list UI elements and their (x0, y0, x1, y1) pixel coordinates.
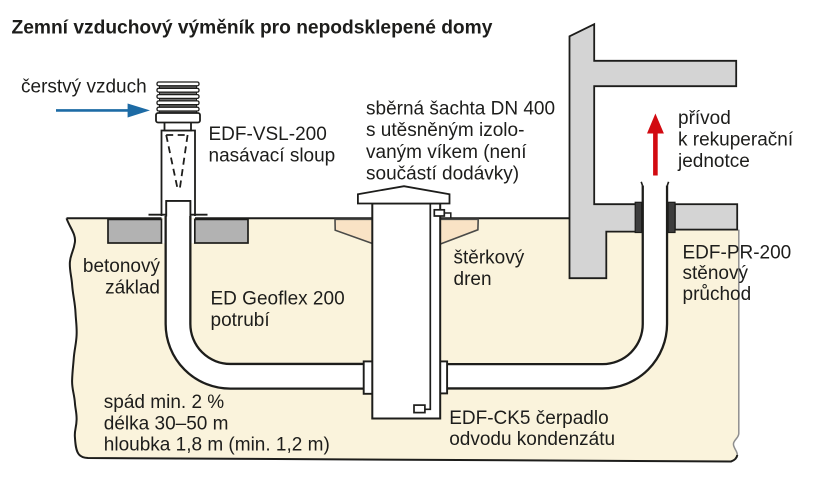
svg-text:nasávací sloup: nasávací sloup (209, 145, 336, 166)
svg-text:přívod: přívod (678, 108, 731, 129)
svg-text:EDF-CK5 čerpadlo: EDF-CK5 čerpadlo (449, 408, 608, 429)
svg-text:vaným víkem (není: vaným víkem (není (366, 142, 527, 163)
svg-text:EDF-PR-200: EDF-PR-200 (683, 242, 792, 263)
svg-text:odvodu kondenzátu: odvodu kondenzátu (449, 429, 615, 450)
svg-text:čerstvý vzduch: čerstvý vzduch (21, 76, 147, 97)
svg-text:dren: dren (454, 269, 492, 290)
svg-text:Zemní vzduchový výměník pro ne: Zemní vzduchový výměník pro nepodsklepen… (12, 17, 493, 38)
svg-text:stěnový: stěnový (683, 263, 749, 284)
svg-text:průchod: průchod (683, 284, 752, 305)
svg-text:betonový: betonový (83, 256, 161, 277)
svg-text:ED Geoflex 200: ED Geoflex 200 (211, 288, 345, 309)
svg-text:k rekuperační: k rekuperační (678, 130, 794, 151)
svg-text:s utěsněným izolo-: s utěsněným izolo- (366, 120, 524, 141)
svg-text:délka 30–50 m: délka 30–50 m (104, 413, 229, 434)
svg-text:součástí dodávky): součástí dodávky) (366, 164, 519, 185)
svg-text:spád min. 2 %: spád min. 2 % (104, 392, 224, 413)
svg-text:potrubí: potrubí (211, 310, 271, 331)
svg-text:sběrná šachta DN 400: sběrná šachta DN 400 (366, 99, 555, 120)
svg-text:hloubka 1,8 m (min. 1,2 m): hloubka 1,8 m (min. 1,2 m) (104, 435, 330, 456)
svg-text:jednotce: jednotce (677, 151, 750, 172)
svg-text:EDF-VSL-200: EDF-VSL-200 (209, 124, 327, 145)
svg-text:základ: základ (105, 277, 160, 298)
svg-text:štěrkový: štěrkový (454, 248, 525, 269)
